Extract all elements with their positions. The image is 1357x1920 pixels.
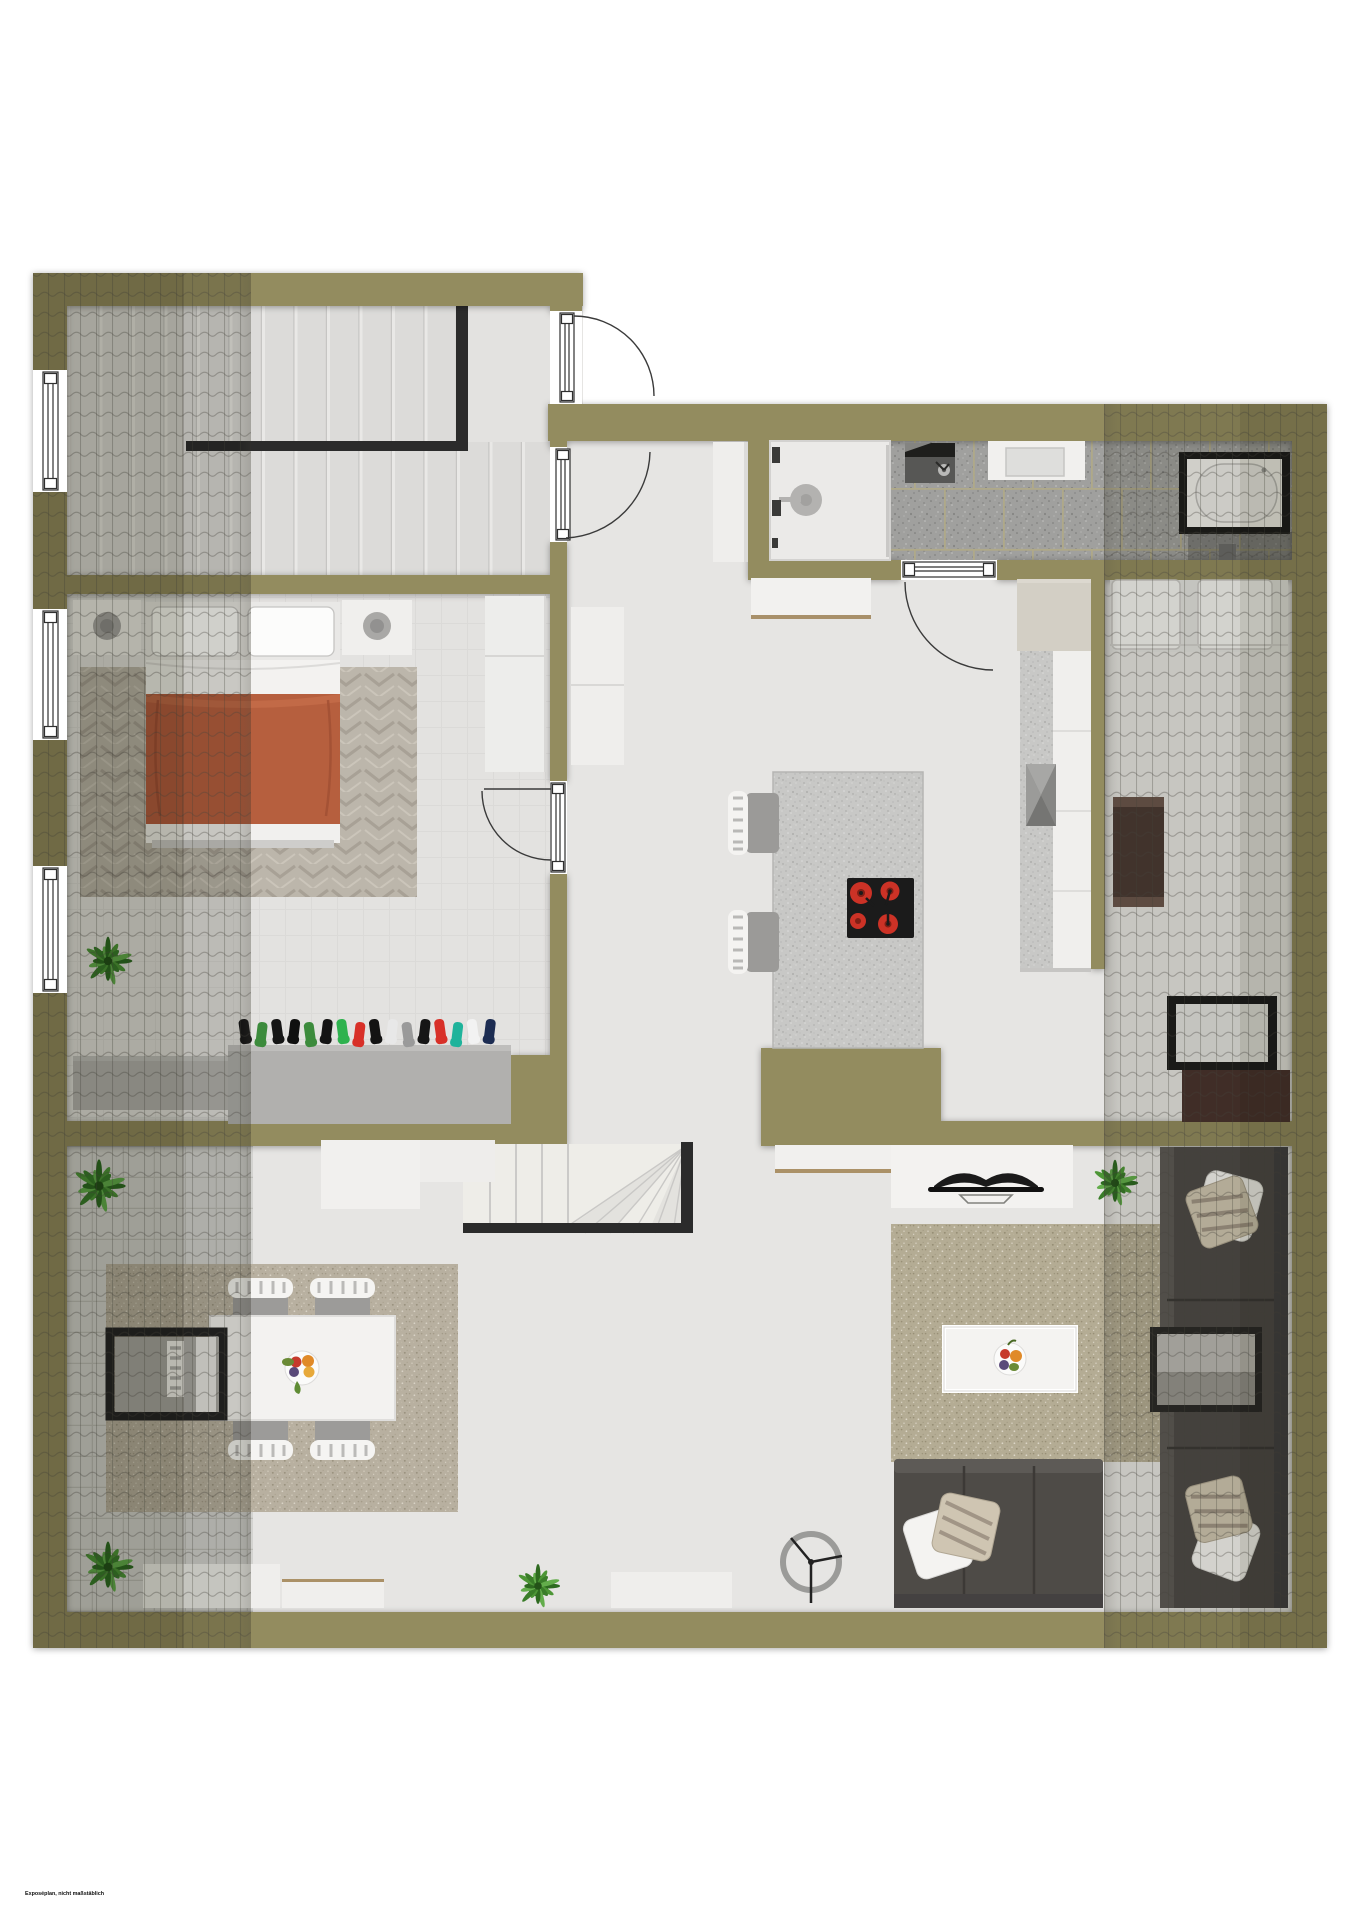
svg-text:Exposéplan, nicht maßstäblich: Exposéplan, nicht maßstäblich: [25, 1891, 104, 1897]
